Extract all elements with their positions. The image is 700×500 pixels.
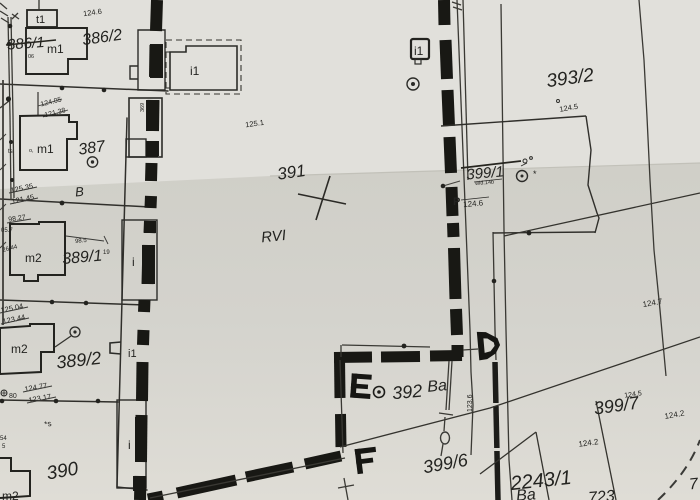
svg-text:t1: t1: [36, 14, 45, 26]
svg-text:389/1: 389/1: [62, 248, 103, 268]
svg-text:369: 369: [140, 103, 146, 112]
svg-text:80: 80: [9, 393, 17, 400]
svg-text:ts: ts: [8, 149, 13, 155]
svg-text:o,: o,: [29, 148, 34, 154]
svg-text:05.7: 05.7: [1, 228, 13, 234]
svg-text:723: 723: [587, 488, 615, 500]
svg-text:B: B: [74, 184, 84, 200]
svg-text:i1: i1: [190, 64, 200, 78]
svg-text:Ba: Ba: [427, 377, 448, 396]
svg-text:i1: i1: [128, 348, 137, 360]
svg-text:54: 54: [0, 436, 7, 442]
svg-text:P: P: [453, 196, 460, 208]
svg-text:m2: m2: [2, 489, 19, 500]
svg-text:m1: m1: [37, 142, 54, 156]
svg-text:i: i: [128, 438, 131, 452]
svg-text:392: 392: [391, 381, 423, 404]
svg-text:RVI: RVI: [260, 227, 286, 246]
svg-text:19: 19: [103, 250, 110, 256]
svg-text:m1: m1: [47, 42, 64, 56]
svg-text:06: 06: [28, 54, 34, 60]
svg-text:i1: i1: [414, 44, 424, 58]
svg-text:i: i: [132, 255, 135, 269]
svg-text:m2: m2: [11, 342, 28, 356]
svg-text:m2: m2: [25, 251, 42, 265]
svg-text:*: *: [533, 169, 537, 179]
svg-text:Ba: Ba: [516, 486, 537, 500]
svg-text:123.6: 123.6: [467, 394, 474, 412]
svg-text:124.6: 124.6: [463, 198, 484, 209]
svg-text:391: 391: [276, 161, 307, 184]
